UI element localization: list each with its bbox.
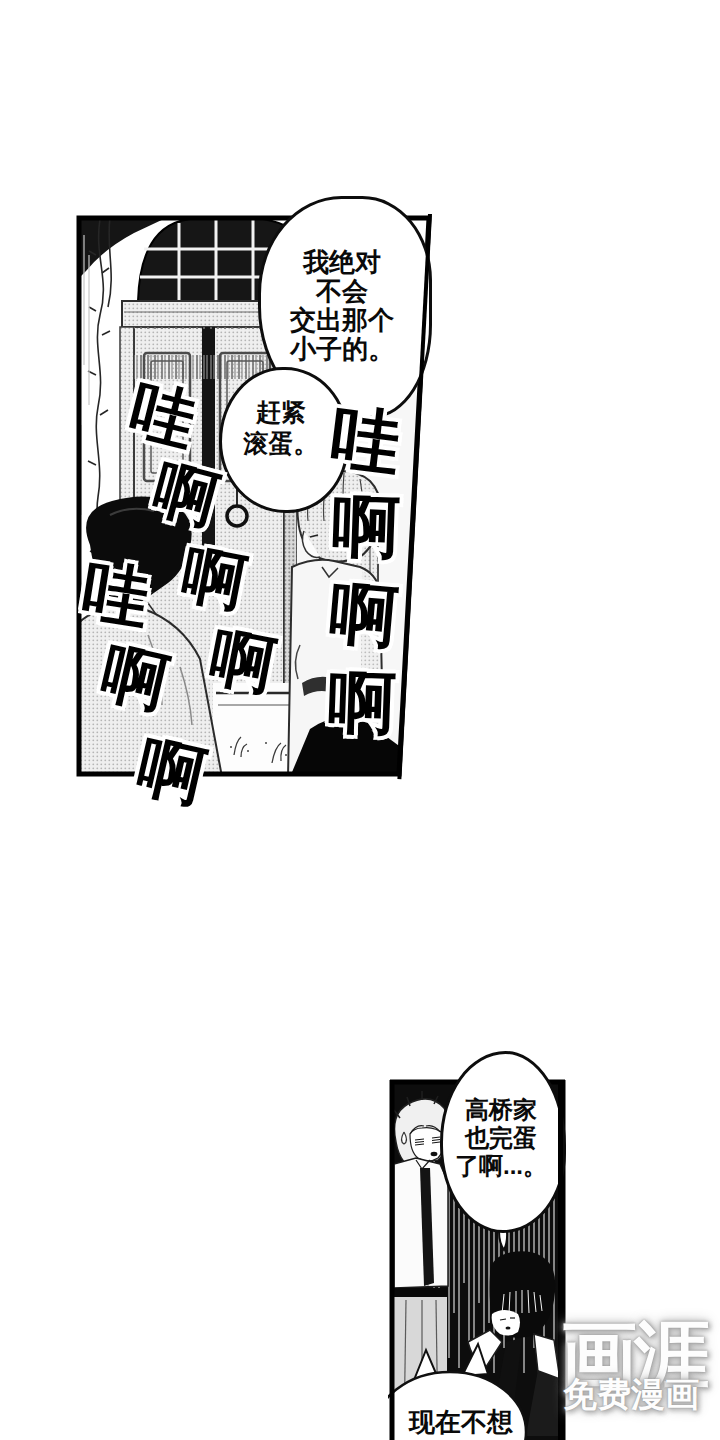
sfx-a: 啊 xyxy=(205,623,280,698)
sfx-wa: 哇 xyxy=(327,402,404,479)
speech-text-refuse: 我绝对 不会 交出那个 小子的。 xyxy=(266,248,418,364)
sfx-a: 啊 xyxy=(327,577,401,651)
watermark-tagline: 免费漫画 xyxy=(563,1372,699,1418)
sfx-a: 啊 xyxy=(327,667,397,737)
speech-text-takahashi: 高桥家 也完蛋 了啊...。 xyxy=(446,1096,556,1180)
speech-text-now: 现在不想 xyxy=(396,1407,526,1437)
sfx-a: 啊 xyxy=(132,731,211,810)
sfx-a: 啊 xyxy=(178,542,252,616)
sfx-a: 啊 xyxy=(331,491,401,561)
speech-text-scram: 赶紧 滚蛋。 xyxy=(223,397,339,459)
manga-page: { "colors": { "ink": "#000000", "paper":… xyxy=(0,0,720,1440)
sfx-wa: 哇 xyxy=(78,556,154,632)
